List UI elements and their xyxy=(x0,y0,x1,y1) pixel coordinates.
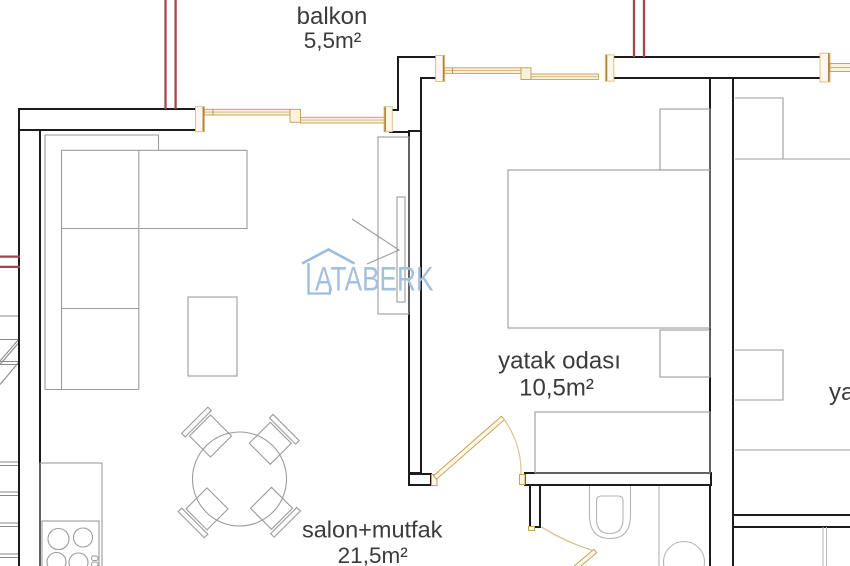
svg-text:21,5m²: 21,5m² xyxy=(338,543,409,566)
svg-text:ATABERK: ATABERK xyxy=(315,260,434,298)
svg-text:5,5m²: 5,5m² xyxy=(304,28,362,53)
svg-text:yata: yata xyxy=(829,379,850,406)
svg-text:yatak odası: yatak odası xyxy=(498,348,621,375)
svg-text:balkon: balkon xyxy=(297,3,368,30)
svg-text:10,5m²: 10,5m² xyxy=(519,375,594,402)
svg-text:salon+mutfak: salon+mutfak xyxy=(302,517,443,543)
